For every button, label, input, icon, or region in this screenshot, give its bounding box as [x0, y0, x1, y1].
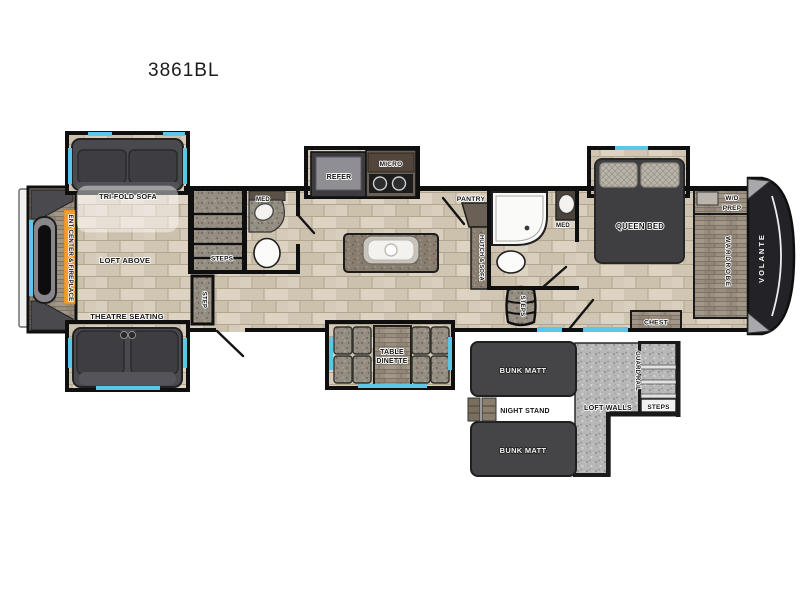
toilet-icon [254, 239, 280, 268]
refer-label: REFER [327, 174, 352, 181]
faucet-icon [385, 244, 397, 256]
kitchen-island [344, 234, 438, 272]
entry-door-swing [217, 331, 243, 356]
recliner-seat [131, 331, 178, 375]
front-bath-med-label: MED [556, 223, 570, 229]
theatre-seating-label: THEATRE SEATING [90, 312, 164, 321]
pillow [600, 163, 637, 187]
loft-steps-label: STEPS [647, 404, 670, 411]
hutch-sofa-label: HUTCH & SOFA [478, 235, 484, 281]
page-title: 3861BL [148, 60, 220, 81]
tv-screen [38, 225, 51, 295]
bunk-matt-top-label: BUNK MATT [500, 366, 547, 375]
theatre-footrest [79, 372, 176, 385]
recliner-seat [77, 331, 124, 375]
wardrobe-cabinet [694, 214, 748, 318]
guard-rail-label: GUARD RAIL [634, 351, 640, 391]
mid-steps-label: STEPS [211, 256, 234, 263]
kitchen-slide: REFER MICRO [306, 148, 418, 197]
rv-floorplan-page: 3861BL ENT CENTER & FIREPLACE TRI-FOLD S… [0, 0, 800, 600]
tri-fold-sofa-label: TRI-FOLD SOFA [99, 192, 157, 201]
wd-appliance-icon [697, 192, 718, 205]
wd-prep-label-line2: PREP [723, 205, 742, 212]
bedroom-steps-label: STEPS [519, 296, 525, 317]
bunk-matt-bottom-label: BUNK MATT [500, 446, 547, 455]
theatre-seating-slide [67, 322, 188, 390]
mid-steps: STEPS [193, 190, 243, 272]
mid-bath-med-label: MED [256, 197, 270, 203]
entry-step: STEP [192, 276, 213, 324]
wardrobe-label: WARDROBE [724, 236, 731, 287]
night-stand [468, 398, 496, 421]
cupholder-icon [120, 331, 127, 338]
wd-prep-label-line1: W/D [725, 195, 738, 202]
shower-icon [492, 192, 547, 245]
loft-above-label: LOFT ABOVE [100, 256, 151, 265]
tri-fold-sofa-slide [67, 133, 188, 193]
entry-step-label: STEP [201, 292, 207, 308]
loft-floorplan: STEPS GUARD RAIL BUNK MATT BUNK MATT NIG… [468, 341, 681, 477]
cupholder-icon [128, 331, 135, 338]
burner-icon [393, 177, 406, 190]
front-cap: VOLANTE [748, 178, 794, 334]
brand-label: VOLANTE [757, 233, 766, 283]
queen-bed-slide: QUEEN BED [589, 148, 688, 263]
chest-label: CHEST [644, 320, 669, 327]
front-cap-body [748, 178, 794, 334]
sofa-cushion [129, 150, 177, 183]
rv-floorplan-image: 3861BL ENT CENTER & FIREPLACE TRI-FOLD S… [0, 0, 800, 600]
rear-cap: ENT CENTER & FIREPLACE [19, 187, 76, 332]
pillow [641, 163, 679, 187]
night-stand-label: NIGHT STAND [500, 408, 550, 415]
queen-bed-label: QUEEN BED [616, 222, 664, 231]
dinette-label: DINETTE [376, 358, 407, 365]
ent-center-fireplace-label: ENT CENTER & FIREPLACE [67, 215, 74, 302]
bedroom-steps: STEPS [507, 287, 536, 325]
micro-label: MICRO [380, 161, 403, 168]
sink-icon [559, 195, 575, 214]
toilet-icon [497, 251, 525, 273]
sofa-cushion [78, 150, 126, 183]
table-label: TABLE [380, 349, 404, 356]
burner-icon [374, 177, 387, 190]
pantry-label: PANTRY [457, 196, 486, 203]
dinette-slide: TABLE DINETTE [327, 322, 453, 388]
loft-walls-label: LOFT WALLS [584, 403, 632, 412]
drain-icon [525, 226, 530, 231]
